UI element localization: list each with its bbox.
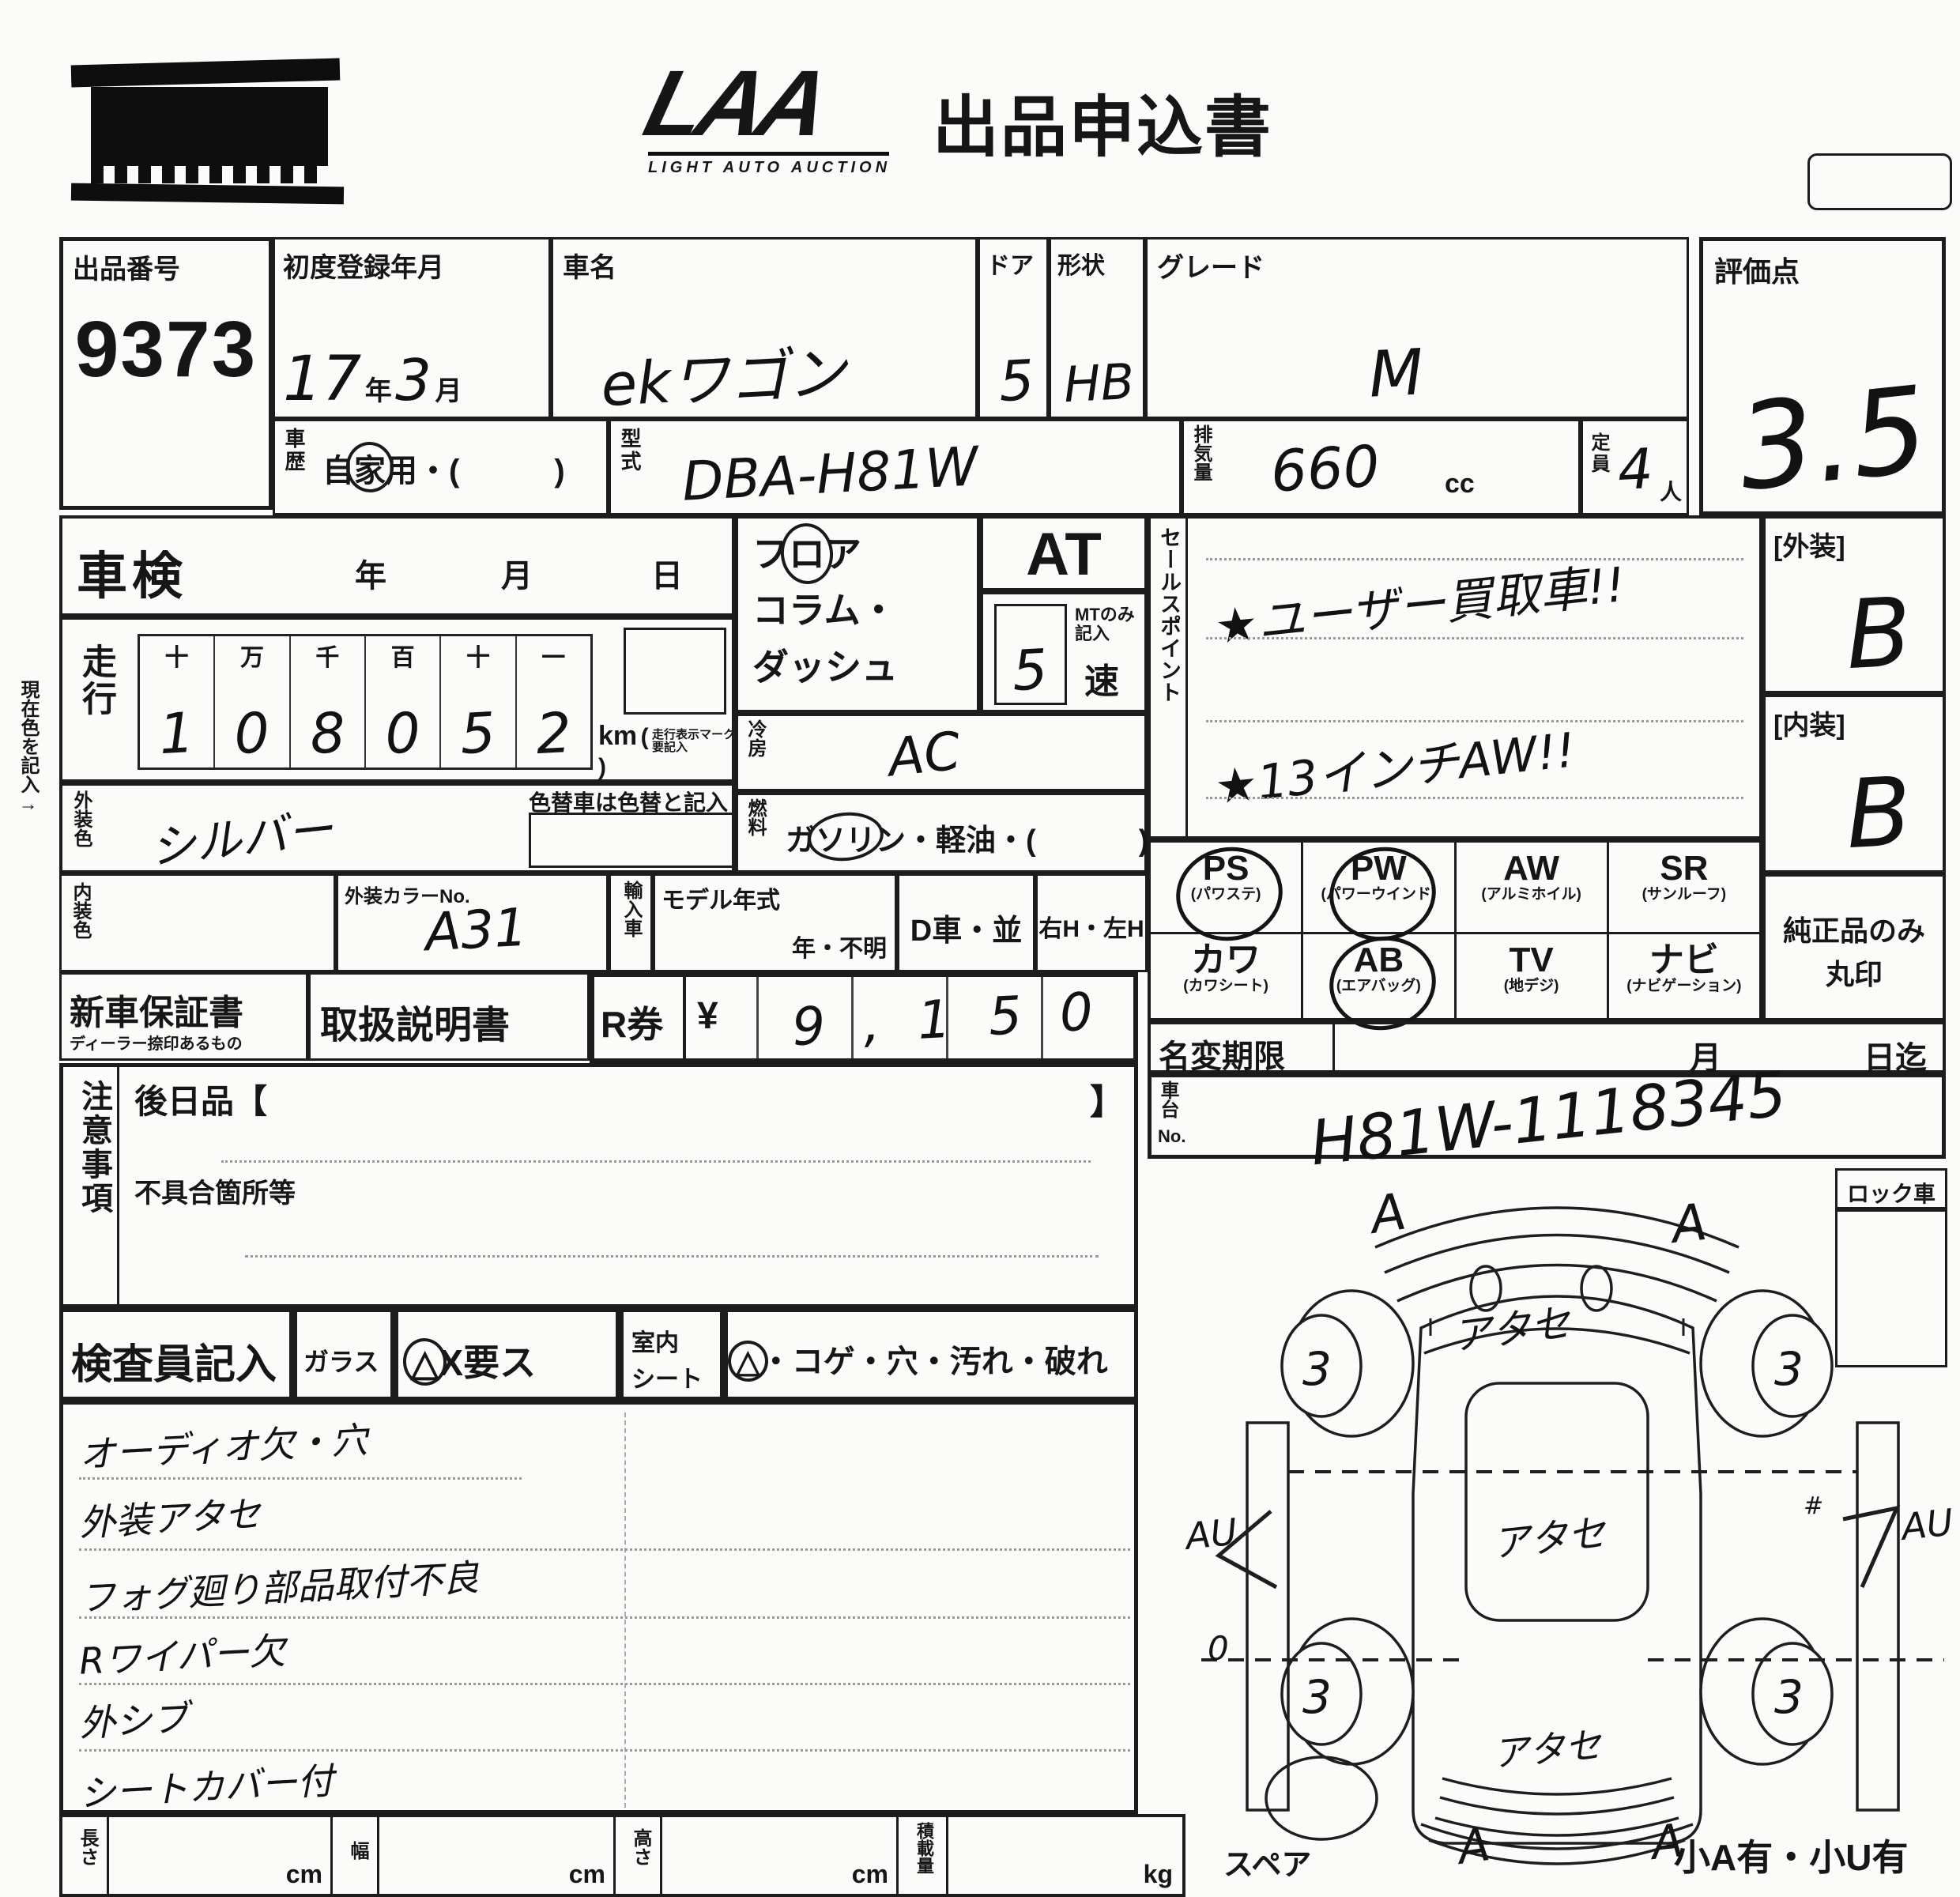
mt-note2: 記入	[1075, 624, 1135, 643]
handle-options: 右H・左H	[1038, 909, 1145, 944]
side-right-damage-code: AU	[1898, 1500, 1955, 1548]
recycle-ticket-label: R券	[601, 996, 663, 1048]
wheel-depth-rear-right: 3	[1774, 1670, 1804, 1724]
measurements-row: 長さ cm 幅 cm 高さ cm 積載量 kg	[59, 1814, 1185, 1897]
page-title: 出品申込書	[933, 74, 1272, 170]
odometer-unit: km	[598, 721, 637, 751]
wheel-depth-rear-left: 3	[1302, 1670, 1332, 1724]
warranty-label: 新車保証書	[70, 984, 243, 1035]
score-value: 3.5	[1732, 361, 1934, 518]
d-car-options: D車・並	[899, 906, 1033, 949]
month-unit: 月	[435, 376, 462, 406]
door-value: 5	[997, 348, 1036, 414]
shaken-year-unit: 年	[355, 550, 386, 596]
equip-code: TV	[1457, 942, 1607, 979]
glass-triangle-option: △	[411, 1342, 439, 1383]
width-value-cell: cm	[379, 1817, 616, 1894]
grade-cell: グレード M	[1145, 237, 1689, 419]
height-unit: cm	[852, 1860, 888, 1889]
width-label-cell: 幅	[333, 1817, 379, 1894]
warranty-cell: 新車保証書 ディーラー捺印あるもの	[59, 972, 308, 1061]
history-cell: 車歴 自家用・()	[273, 419, 609, 515]
cooling-value: AC	[885, 720, 963, 788]
history-text3: )	[554, 454, 564, 488]
fuel-cell: 燃料 ガソリン・軽油・()	[735, 792, 1148, 873]
model-code-value: DBA-H81W	[680, 436, 980, 514]
later-items-label: 後日品【	[134, 1075, 267, 1123]
mt-speed-box: 5	[994, 604, 1067, 705]
grade-value: M	[1367, 335, 1426, 411]
laa-logo-text: LAA	[636, 57, 928, 150]
height-label-cell: 高さ	[616, 1817, 662, 1894]
exterior-color-label: 外装色	[67, 790, 95, 871]
fuel-diesel: ン・軽油・(	[876, 824, 1036, 858]
grade-label: グレード	[1157, 246, 1265, 285]
first-registration-year: 17	[283, 344, 361, 415]
header-empty-box	[1807, 153, 1952, 210]
car-name-value: ekワゴン	[598, 326, 848, 423]
exterior-color-value: シルバー	[146, 792, 336, 877]
shift-position-cell: フロア コラム・ ダッシュ	[735, 515, 980, 713]
cooling-label: 冷房	[741, 719, 769, 790]
odo-digit: 5	[439, 700, 516, 768]
car-diagram: A A アタセ アタセ アタセ 3 3 3 3 AU 0 # AU A A スペ…	[1185, 1154, 1960, 1897]
recycle-ticket-value: 9,150	[790, 979, 1132, 1058]
seat-label-cell: 室内 シート	[620, 1308, 724, 1401]
score-label: 評価点	[1714, 249, 1800, 290]
capacity-label: 定員	[1585, 432, 1612, 511]
odometer-grid: 十1 万0 千8 百0 十5 一2	[138, 634, 593, 770]
caution-label: 注意事項	[71, 1080, 117, 1301]
history-text2: 用・(	[386, 454, 459, 488]
length-unit: cm	[286, 1860, 322, 1889]
at-value: AT	[983, 520, 1144, 589]
lot-number-label: 出品番号	[73, 247, 180, 286]
name-change-label: 名変期限	[1159, 1031, 1285, 1077]
odo-digit: 1	[138, 700, 215, 768]
at-cell: AT	[980, 515, 1148, 591]
odometer-blank-box	[624, 628, 726, 715]
equip-tv: TV(地デジ)	[1457, 934, 1609, 1021]
manual-cell: 取扱説明書	[308, 972, 590, 1061]
glass-options-cell: △X要ス	[394, 1308, 620, 1401]
seat-options-cell: △・コゲ・穴・汚れ・破れ	[724, 1308, 1138, 1401]
shaken-label: 車検	[77, 536, 187, 609]
first-registration-month: 3	[395, 347, 432, 413]
equip-name: (カワシート)	[1151, 979, 1301, 994]
inspector-note-1: オーディオ欠・穴	[78, 1411, 369, 1478]
mt-speed-unit: 速	[1084, 653, 1119, 703]
length-label: 長さ	[73, 1828, 101, 1891]
inspector-note-2: 外装アタセ	[77, 1485, 262, 1547]
width-unit: cm	[569, 1860, 605, 1889]
glass-options: X要ス	[439, 1342, 536, 1383]
mileage-label: 走行	[70, 643, 121, 770]
model-year-options: 年・不明	[792, 929, 887, 964]
exterior-grade-cell: [外装] B	[1762, 515, 1946, 694]
payload-label: 積載量	[911, 1822, 937, 1897]
seat-triangle-option: △	[736, 1344, 760, 1379]
small-damage-footnote: 小A有・小U有	[1674, 1837, 1908, 1878]
odo-note: 走行表示マーク	[652, 729, 735, 741]
interior-color-cell: 内装色	[59, 873, 336, 972]
import-label: 輸入車	[617, 881, 645, 969]
first-registration-label: 初度登録年月	[283, 246, 444, 285]
inspector-note-4: Rワイパー欠	[77, 1622, 286, 1685]
rear-damage-note: アタセ	[1491, 1723, 1604, 1775]
shape-cell: 形状 HB	[1049, 237, 1145, 419]
cabin-damage-note: アタセ	[1490, 1510, 1609, 1567]
year-unit: 年	[365, 376, 392, 406]
recycle-ticket-cell: R券 ¥ 9,150	[590, 972, 1138, 1063]
first-registration-cell: 初度登録年月 17 年 3 月	[273, 237, 551, 419]
front-damage-mark-left: A	[1364, 1182, 1410, 1246]
equip-name: (サンルーフ)	[1609, 887, 1759, 902]
equip-name: (アルミホイル)	[1457, 887, 1607, 902]
odo-header: 万	[215, 638, 288, 673]
exterior-grade-label: [外装]	[1773, 525, 1845, 564]
auction-sheet: LAA LIGHT AUTO AUCTION 出品申込書 出品番号 9373 初…	[0, 0, 1960, 1897]
repaint-box	[529, 813, 736, 868]
model-code-label: 型式	[616, 428, 645, 511]
lot-number-value: 9373	[63, 304, 269, 395]
later-items-bracket: 】	[1090, 1073, 1125, 1124]
height-value-cell: cm	[662, 1817, 899, 1894]
capacity-unit: 人	[1660, 475, 1682, 507]
laa-logo: LAA LIGHT AUTO AUCTION	[648, 57, 917, 183]
handle-cell: 右H・左H	[1035, 873, 1148, 972]
length-value-cell: cm	[109, 1817, 333, 1894]
mt-cell: 5 MTのみ 記入 速	[980, 591, 1148, 713]
side-right-hash-mark: #	[1804, 1492, 1823, 1520]
odo-header: 十	[441, 638, 514, 673]
shift-circled-option: ロ	[789, 534, 825, 575]
current-color-note: 現在色を記入→	[14, 680, 42, 917]
odo-header: 十	[140, 638, 213, 673]
defect-label: 不具合箇所等	[134, 1171, 296, 1210]
exterior-color-cell: 外装色 シルバー 色替車は色替と記入	[59, 783, 735, 873]
mt-note: MTのみ	[1075, 605, 1135, 624]
inspector-note-6: シートカバー付	[77, 1752, 334, 1818]
width-label: 幅	[344, 1841, 371, 1888]
lot-number-cell: 出品番号 9373	[59, 237, 273, 510]
shift-column: コラム・	[752, 583, 898, 639]
sales-point-label: セールスポイント	[1154, 526, 1185, 835]
sales-point-1: ★ユーザー買取車!!	[1212, 546, 1628, 658]
odo-digit: 0	[213, 700, 290, 768]
car-name-label: 車名	[563, 246, 616, 285]
equip-name: (ナビゲーション)	[1609, 979, 1759, 994]
payload-value-cell: kg	[948, 1817, 1182, 1894]
equip-kawa: カワ(カワシート)	[1151, 934, 1303, 1021]
chassis-cell: 車台 No. H81W-1118345	[1148, 1073, 1946, 1159]
chassis-label-no: No.	[1158, 1128, 1185, 1145]
displacement-label: 排気量	[1187, 424, 1215, 515]
color-no-cell: 外装カラーNo. A31	[336, 873, 609, 972]
equip-aw: AW(アルミホイル)	[1457, 843, 1609, 932]
genuine-parts-note2: 丸印	[1766, 952, 1943, 993]
interior-grade-cell: [内装] B	[1762, 694, 1946, 873]
fuel-label: 燃料	[741, 798, 769, 871]
rear-damage-mark-left: A	[1452, 1817, 1494, 1875]
length-label-cell: 長さ	[62, 1817, 109, 1894]
interior-grade-value: B	[1843, 757, 1913, 870]
odo-header: 千	[291, 638, 364, 673]
cooling-cell: 冷房 AC	[735, 713, 1148, 792]
inspector-label: 検査員記入	[71, 1331, 277, 1390]
model-code-cell: 型式 DBA-H81W	[609, 419, 1182, 515]
wheel-depth-front-left: 3	[1302, 1342, 1332, 1396]
odo-digit: 0	[364, 700, 441, 768]
model-year-cell: モデル年式 年・不明	[653, 873, 897, 972]
score-cell: 評価点 3.5	[1699, 237, 1946, 515]
warranty-sublabel: ディーラー捺印あるもの	[70, 1031, 243, 1054]
shape-label: 形状	[1057, 246, 1105, 281]
payload-unit: kg	[1144, 1860, 1173, 1889]
chassis-label: 車台	[1158, 1080, 1177, 1128]
displacement-value: 660	[1269, 432, 1381, 504]
genuine-parts-note: 純正品のみ	[1766, 908, 1943, 949]
fuel-circled-option: ソリ	[816, 824, 876, 858]
model-year-label: モデル年式	[661, 881, 780, 915]
manual-label: 取扱説明書	[320, 994, 510, 1049]
glass-label-cell: ガラス	[293, 1308, 394, 1401]
equip-sr: SR(サンルーフ)	[1609, 843, 1759, 932]
yen-symbol: ¥	[697, 994, 718, 1038]
interior-grade-label: [内装]	[1773, 703, 1845, 742]
door-label: ドア	[986, 246, 1034, 281]
shaken-day-unit: 日	[651, 550, 683, 596]
capacity-value: 4	[1616, 436, 1655, 503]
d-car-cell: D車・並	[897, 873, 1035, 972]
wheel-depth-front-right: 3	[1774, 1342, 1804, 1396]
odo-header: 一	[517, 638, 590, 673]
shaken-cell: 車検 年 月 日	[59, 515, 735, 617]
history-circled-option: 家	[354, 454, 386, 488]
front-damage-mark-right: A	[1666, 1194, 1709, 1256]
exterior-grade-value: B	[1843, 578, 1913, 691]
odo-note2: 要記入	[652, 741, 735, 754]
sales-point-block: セールスポイント ★ユーザー買取車!! ★13インチAW!!	[1148, 515, 1762, 839]
inspector-label-cell: 検査員記入	[59, 1308, 293, 1401]
seat-options: ・コゲ・穴・汚れ・破れ	[760, 1344, 1108, 1379]
name-change-cell: 名変期限 月 日迄	[1148, 1021, 1946, 1073]
displacement-unit: cc	[1445, 469, 1475, 500]
redacted-stamp	[71, 62, 348, 204]
name-change-day: 日迄	[1864, 1032, 1927, 1078]
equip-code: AW	[1457, 850, 1607, 887]
caution-block: 注意事項 後日品【 】 不具合箇所等	[59, 1063, 1138, 1308]
equip-code: ナビ	[1609, 942, 1759, 979]
door-cell: ドア 5	[978, 237, 1049, 419]
shape-value: HB	[1062, 353, 1136, 414]
shift-dash: ダッシュ	[752, 639, 898, 696]
height-label: 高さ	[627, 1828, 654, 1891]
equip-code: カワ	[1151, 942, 1301, 979]
side-left-damage-code: AU	[1185, 1510, 1239, 1558]
payload-label-cell: 積載量	[899, 1817, 948, 1894]
inspector-note-3: フォグ廻り部品取付不良	[78, 1549, 481, 1622]
import-cell: 輸入車	[609, 873, 653, 972]
equip-name: (地デジ)	[1457, 979, 1607, 994]
history-label: 車歴	[280, 428, 309, 511]
displacement-cell: 排気量 660 cc	[1182, 419, 1581, 515]
genuine-parts-cell: 純正品のみ 丸印	[1762, 873, 1946, 1021]
car-name-cell: 車名 ekワゴン	[551, 237, 978, 419]
inspector-notes-area: オーディオ欠・穴 外装アタセ フォグ廻り部品取付不良 Rワイパー欠 外シブ シー…	[59, 1401, 1138, 1814]
seat-label2: シート	[631, 1360, 703, 1394]
mileage-cell: 走行 十1 万0 千8 百0 十5 一2 km ( 走行表示マーク 要記入 )	[59, 617, 735, 783]
color-no-value: A31	[424, 897, 529, 964]
mt-speed-value: 5	[1011, 637, 1050, 703]
spare-label: スペア	[1223, 1849, 1311, 1882]
equip-code: SR	[1609, 850, 1759, 887]
odo-digit: 8	[289, 700, 366, 768]
capacity-cell: 定員 4 人	[1581, 419, 1689, 515]
odo-digit: 2	[515, 700, 592, 768]
sales-point-2: ★13インチAW!!	[1212, 711, 1578, 817]
side-left-zero-mark: 0	[1208, 1629, 1229, 1668]
interior-color-label: 内装色	[66, 882, 94, 967]
equip-navi: ナビ(ナビゲーション)	[1609, 934, 1759, 1021]
glass-label: ガラス	[303, 1342, 379, 1378]
seat-label: 室内	[631, 1323, 679, 1358]
shaken-month-unit: 月	[501, 550, 533, 596]
odo-header: 百	[366, 638, 439, 673]
inspector-note-5: 外シブ	[77, 1689, 189, 1747]
